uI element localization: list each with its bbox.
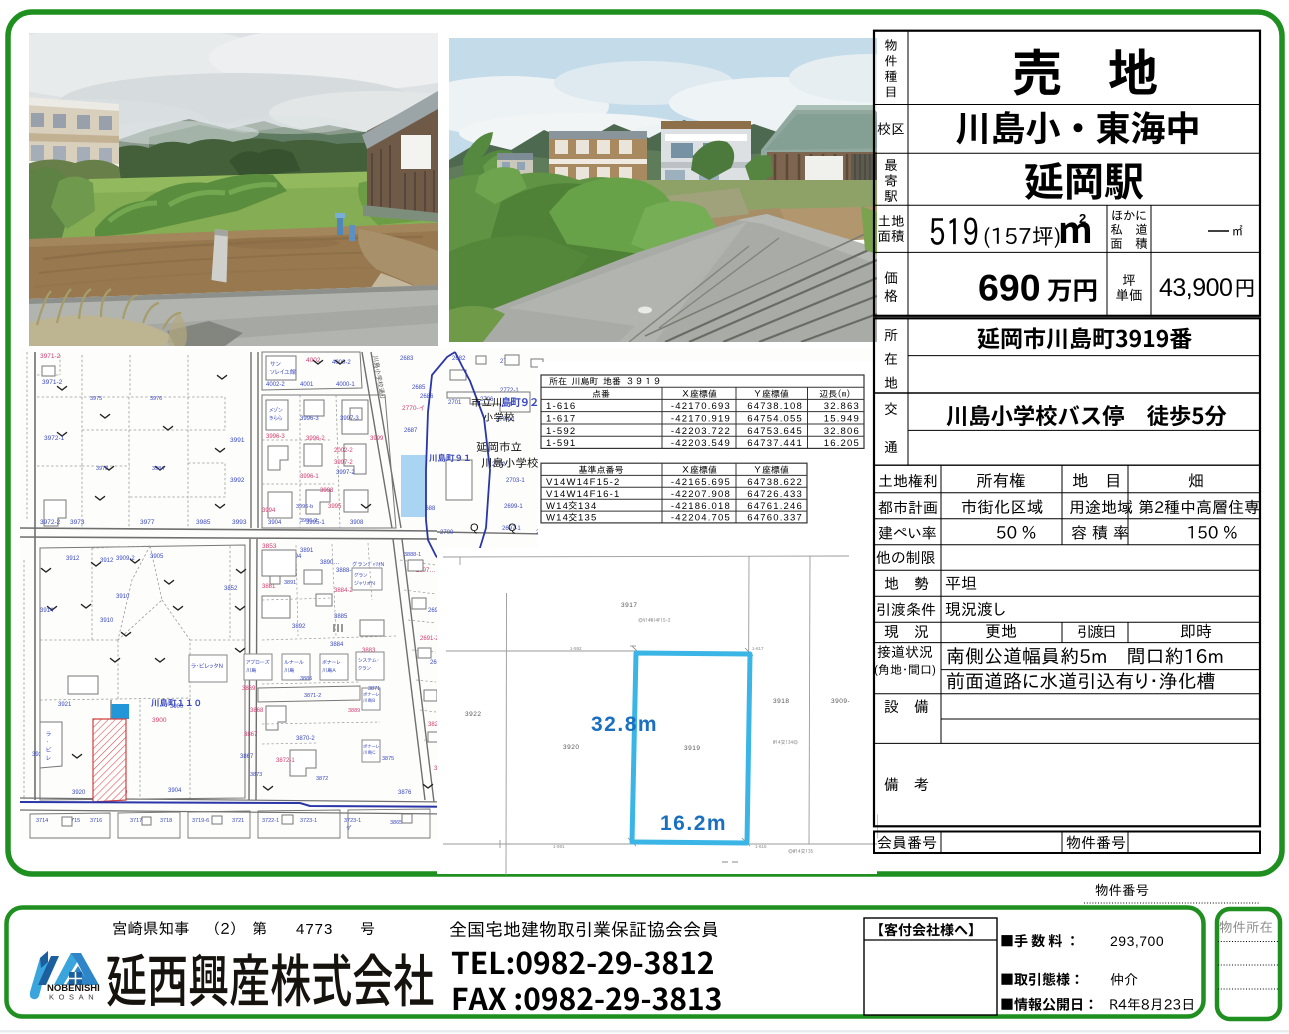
svg-text:2700: 2700: [440, 530, 454, 536]
svg-text:2770-イ: 2770-イ: [402, 405, 425, 412]
svg-text:3872: 3872: [316, 776, 328, 782]
svg-text:3891: 3891: [300, 548, 314, 554]
svg-text:64754.055: 64754.055: [747, 414, 803, 425]
svg-text:3881: 3881: [262, 584, 276, 590]
svg-text:3971-2: 3971-2: [42, 379, 63, 386]
svg-text:2683: 2683: [400, 356, 414, 362]
svg-text:3884-2: 3884-2: [334, 588, 353, 594]
svg-text:3900: 3900: [152, 717, 167, 724]
svg-text:3996-3: 3996-3: [300, 416, 319, 422]
svg-text:3920: 3920: [563, 744, 579, 751]
svg-text:3972-2: 3972-2: [40, 519, 61, 526]
svg-text:-42170.919: -42170.919: [671, 414, 731, 425]
svg-text:3995-1: 3995-1: [306, 520, 325, 526]
svg-text:3908: 3908: [350, 520, 364, 526]
svg-text:3997-2: 3997-2: [334, 460, 353, 466]
svg-text:3870-2: 3870-2: [296, 736, 315, 742]
svg-text:64753.645: 64753.645: [747, 426, 803, 437]
svg-text:Q: Q: [508, 522, 517, 534]
svg-text:3971-2: 3971-2: [40, 353, 61, 360]
svg-text:3723-1: 3723-1: [344, 818, 361, 824]
svg-text:3909-2: 3909-2: [116, 556, 135, 562]
svg-text:3905: 3905: [150, 554, 164, 560]
svg-text:3718: 3718: [160, 818, 172, 824]
svg-text:3985: 3985: [196, 519, 211, 526]
svg-text:3888-1: 3888-1: [404, 552, 421, 558]
svg-text:3999: 3999: [370, 436, 384, 442]
svg-text:1-592: 1-592: [570, 646, 582, 651]
svg-text:3910: 3910: [116, 594, 130, 600]
svg-text:2685: 2685: [412, 385, 426, 391]
svg-text:3891: 3891: [284, 580, 296, 586]
svg-text:3872-1: 3872-1: [276, 758, 295, 764]
svg-text:690: 690: [978, 267, 1041, 309]
svg-text:グランｼﾞｬﾘｵN: グランｼﾞｬﾘｵN: [352, 560, 385, 568]
svg-text:-42204.705: -42204.705: [671, 513, 731, 524]
svg-text:3876: 3876: [398, 790, 412, 796]
svg-text:3912: 3912: [66, 556, 80, 562]
svg-text:-42203.722: -42203.722: [671, 426, 731, 437]
svg-text:3912: 3912: [100, 558, 114, 564]
svg-text:3721: 3721: [232, 818, 244, 824]
svg-text:3867: 3867: [240, 754, 254, 760]
svg-text:1-616: 1-616: [755, 844, 767, 849]
svg-text:2687: 2687: [404, 428, 418, 434]
svg-text:2701: 2701: [448, 400, 462, 406]
svg-text:-42186.018: -42186.018: [671, 501, 731, 512]
svg-text:3977: 3977: [140, 519, 155, 526]
svg-text:3998: 3998: [320, 488, 334, 494]
svg-text:1-616: 1-616: [546, 401, 576, 412]
svg-text:3918: 3918: [773, 698, 789, 705]
svg-text:3978: 3978: [96, 466, 108, 472]
svg-text:3972-1: 3972-1: [44, 435, 65, 442]
svg-text:43,900: 43,900: [1159, 274, 1232, 302]
svg-text:135: 135: [578, 513, 597, 524]
svg-text:3884: 3884: [330, 642, 344, 648]
svg-text:293,700: 293,700: [1110, 933, 1164, 949]
svg-text:3973: 3973: [70, 519, 85, 526]
svg-text:3992: 3992: [230, 477, 245, 484]
svg-text:3723-1: 3723-1: [300, 818, 317, 824]
svg-text:3996-1: 3996-1: [300, 474, 319, 480]
svg-text:3921: 3921: [58, 702, 72, 708]
svg-text:4000-1: 4000-1: [336, 382, 355, 388]
svg-text:3996-2: 3996-2: [306, 436, 325, 442]
svg-text:64760.337: 64760.337: [747, 513, 803, 524]
svg-text:3886: 3886: [300, 676, 312, 682]
svg-text:Q: Q: [470, 522, 479, 534]
svg-text:1-591: 1-591: [553, 844, 565, 849]
svg-text:2772-1: 2772-1: [500, 388, 519, 394]
svg-text:3714: 3714: [36, 818, 48, 824]
svg-text:16.205: 16.205: [824, 438, 860, 449]
svg-text:1-617: 1-617: [752, 646, 764, 651]
svg-text:-42170.693: -42170.693: [671, 401, 731, 412]
svg-text:3917: 3917: [621, 602, 637, 609]
svg-text:3909-: 3909-: [831, 698, 850, 705]
svg-text:3996-3: 3996-3: [266, 434, 285, 440]
svg-text:64726.433: 64726.433: [747, 489, 803, 500]
svg-text:4002-2: 4002-2: [266, 382, 285, 388]
svg-text:W14: W14: [546, 501, 569, 512]
svg-text:64738.622: 64738.622: [747, 477, 803, 488]
svg-text:3719-6: 3719-6: [192, 818, 209, 824]
svg-text:64738.108: 64738.108: [747, 401, 803, 412]
svg-text:3865: 3865: [390, 820, 402, 826]
svg-text:3994: 3994: [262, 508, 276, 514]
svg-text:2: 2: [1079, 211, 1086, 226]
svg-text:3976: 3976: [150, 396, 162, 402]
svg-text:3919: 3919: [684, 745, 700, 752]
svg-text:V14W14F16-1: V14W14F16-1: [546, 489, 620, 500]
svg-text:-42207.908: -42207.908: [671, 489, 731, 500]
svg-text:3984: 3984: [152, 466, 164, 472]
svg-text:3922: 3922: [465, 711, 481, 718]
svg-text:3995: 3995: [328, 504, 342, 510]
svg-text:4001: 4001: [300, 382, 314, 388]
svg-text:3892: 3892: [292, 624, 306, 630]
svg-text:2691-2: 2691-2: [420, 636, 439, 642]
svg-text:W14: W14: [546, 513, 569, 524]
svg-text:3910: 3910: [100, 618, 114, 624]
svg-text:3722-1: 3722-1: [262, 818, 279, 824]
svg-text:64761.246: 64761.246: [747, 501, 803, 512]
svg-text:3920: 3920: [72, 790, 86, 796]
svg-text:3871: 3871: [368, 686, 380, 692]
svg-text:KOSAN: KOSAN: [49, 993, 98, 1002]
svg-text:3852: 3852: [224, 586, 238, 592]
svg-text:3904: 3904: [168, 788, 182, 794]
svg-text:134: 134: [578, 501, 597, 512]
svg-text:2002-2: 2002-2: [334, 448, 353, 454]
svg-text:V14W14F15-2: V14W14F15-2: [546, 477, 620, 488]
svg-text:3890…: 3890…: [320, 560, 339, 566]
svg-text:3885: 3885: [334, 614, 348, 620]
svg-text:3717: 3717: [130, 818, 142, 824]
svg-text:3993: 3993: [232, 519, 247, 526]
svg-text:15.949: 15.949: [824, 414, 860, 425]
svg-text:32.863: 32.863: [824, 401, 860, 412]
svg-text:2699-1: 2699-1: [504, 504, 523, 510]
svg-text:ゲ: ゲ: [346, 824, 352, 832]
svg-text:3975: 3975: [90, 396, 102, 402]
svg-text:-42203.549: -42203.549: [671, 438, 731, 449]
svg-text:2703-1: 2703-1: [506, 478, 525, 484]
svg-text:2686: 2686: [420, 394, 434, 400]
svg-text:-42165.695: -42165.695: [671, 477, 731, 488]
svg-text:64737.441: 64737.441: [747, 438, 803, 449]
svg-text:3853: 3853: [262, 543, 277, 550]
svg-text:3914: 3914: [40, 608, 54, 614]
svg-text:1-592: 1-592: [546, 426, 576, 437]
svg-text:32.8m: 32.8m: [591, 713, 658, 736]
svg-text:3889: 3889: [348, 708, 360, 714]
svg-text:3867: 3867: [244, 732, 258, 738]
svg-text:3871-2: 3871-2: [304, 693, 321, 699]
svg-text:32.806: 32.806: [824, 426, 860, 437]
svg-text:4773: 4773: [296, 921, 333, 938]
svg-text:3716: 3716: [90, 818, 102, 824]
svg-text:3997-3: 3997-3: [340, 416, 359, 422]
svg-text:1-617: 1-617: [546, 414, 576, 425]
svg-text:1-591: 1-591: [546, 438, 576, 449]
svg-text:3875: 3875: [382, 756, 394, 762]
svg-text:3873: 3873: [250, 772, 262, 778]
svg-text:16.2m: 16.2m: [660, 812, 727, 835]
svg-text:3991: 3991: [230, 437, 245, 444]
svg-text:3904: 3904: [268, 520, 282, 526]
svg-text:3869: 3869: [242, 686, 256, 692]
svg-text:3868: 3868: [250, 708, 264, 714]
svg-text:3997-2: 3997-2: [336, 470, 355, 476]
svg-text:3996-b: 3996-b: [296, 504, 313, 510]
